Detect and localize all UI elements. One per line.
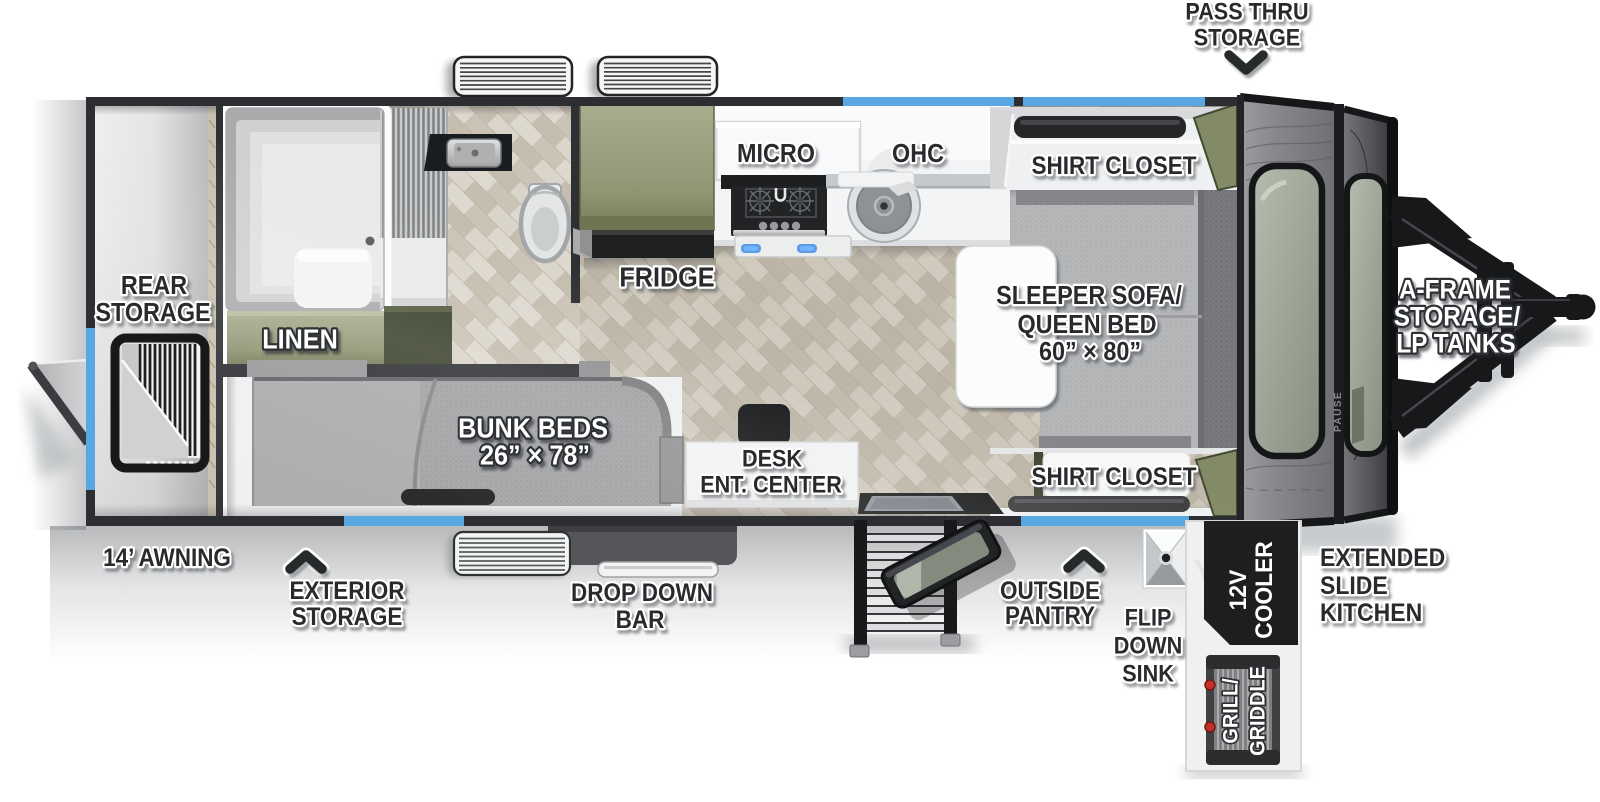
svg-text:SLIDE: SLIDE: [1320, 572, 1388, 600]
svg-text:PANTRY: PANTRY: [1005, 602, 1095, 630]
svg-text:EXTENDED: EXTENDED: [1320, 544, 1445, 572]
svg-text:GRILL/: GRILL/: [1219, 678, 1243, 744]
svg-text:LINEN: LINEN: [262, 323, 338, 355]
svg-text:FRIDGE: FRIDGE: [619, 261, 714, 293]
svg-text:FLIP: FLIP: [1125, 603, 1172, 630]
svg-text:60” × 80”: 60” × 80”: [1039, 338, 1141, 366]
svg-text:LP TANKS: LP TANKS: [1396, 329, 1515, 358]
svg-text:EXTERIOR: EXTERIOR: [290, 577, 405, 605]
svg-text:A-FRAME: A-FRAME: [1399, 275, 1511, 304]
svg-text:DOWN: DOWN: [1114, 631, 1182, 658]
svg-text:REAR: REAR: [121, 272, 187, 300]
svg-text:SLEEPER SOFA/: SLEEPER SOFA/: [996, 282, 1182, 310]
svg-text:MICRO: MICRO: [737, 140, 815, 168]
svg-text:SHIRT CLOSET: SHIRT CLOSET: [1032, 152, 1197, 180]
svg-text:26” × 78”: 26” × 78”: [480, 439, 590, 471]
svg-text:SINK: SINK: [1122, 659, 1174, 686]
svg-text:COOLER: COOLER: [1251, 541, 1278, 639]
svg-text:STORAGE/: STORAGE/: [1394, 302, 1520, 331]
svg-text:BAR: BAR: [616, 606, 665, 634]
svg-text:DROP DOWN: DROP DOWN: [571, 579, 713, 607]
svg-text:14’ AWNING: 14’ AWNING: [103, 544, 231, 572]
svg-text:STORAGE: STORAGE: [292, 603, 403, 631]
svg-text:PASS THRU: PASS THRU: [1185, 0, 1308, 25]
svg-text:SHIRT CLOSET: SHIRT CLOSET: [1032, 463, 1197, 491]
svg-text:KITCHEN: KITCHEN: [1320, 599, 1422, 627]
svg-text:ENT. CENTER: ENT. CENTER: [700, 470, 842, 497]
svg-text:QUEEN BED: QUEEN BED: [1017, 311, 1156, 339]
svg-text:OHC: OHC: [892, 140, 944, 168]
svg-text:PAUSE: PAUSE: [1333, 391, 1344, 432]
svg-text:STORAGE: STORAGE: [1194, 23, 1300, 50]
svg-text:12V: 12V: [1225, 569, 1252, 610]
svg-text:STORAGE: STORAGE: [95, 299, 210, 327]
svg-text:DESK: DESK: [742, 444, 802, 471]
svg-text:GRIDDLE: GRIDDLE: [1246, 666, 1270, 756]
